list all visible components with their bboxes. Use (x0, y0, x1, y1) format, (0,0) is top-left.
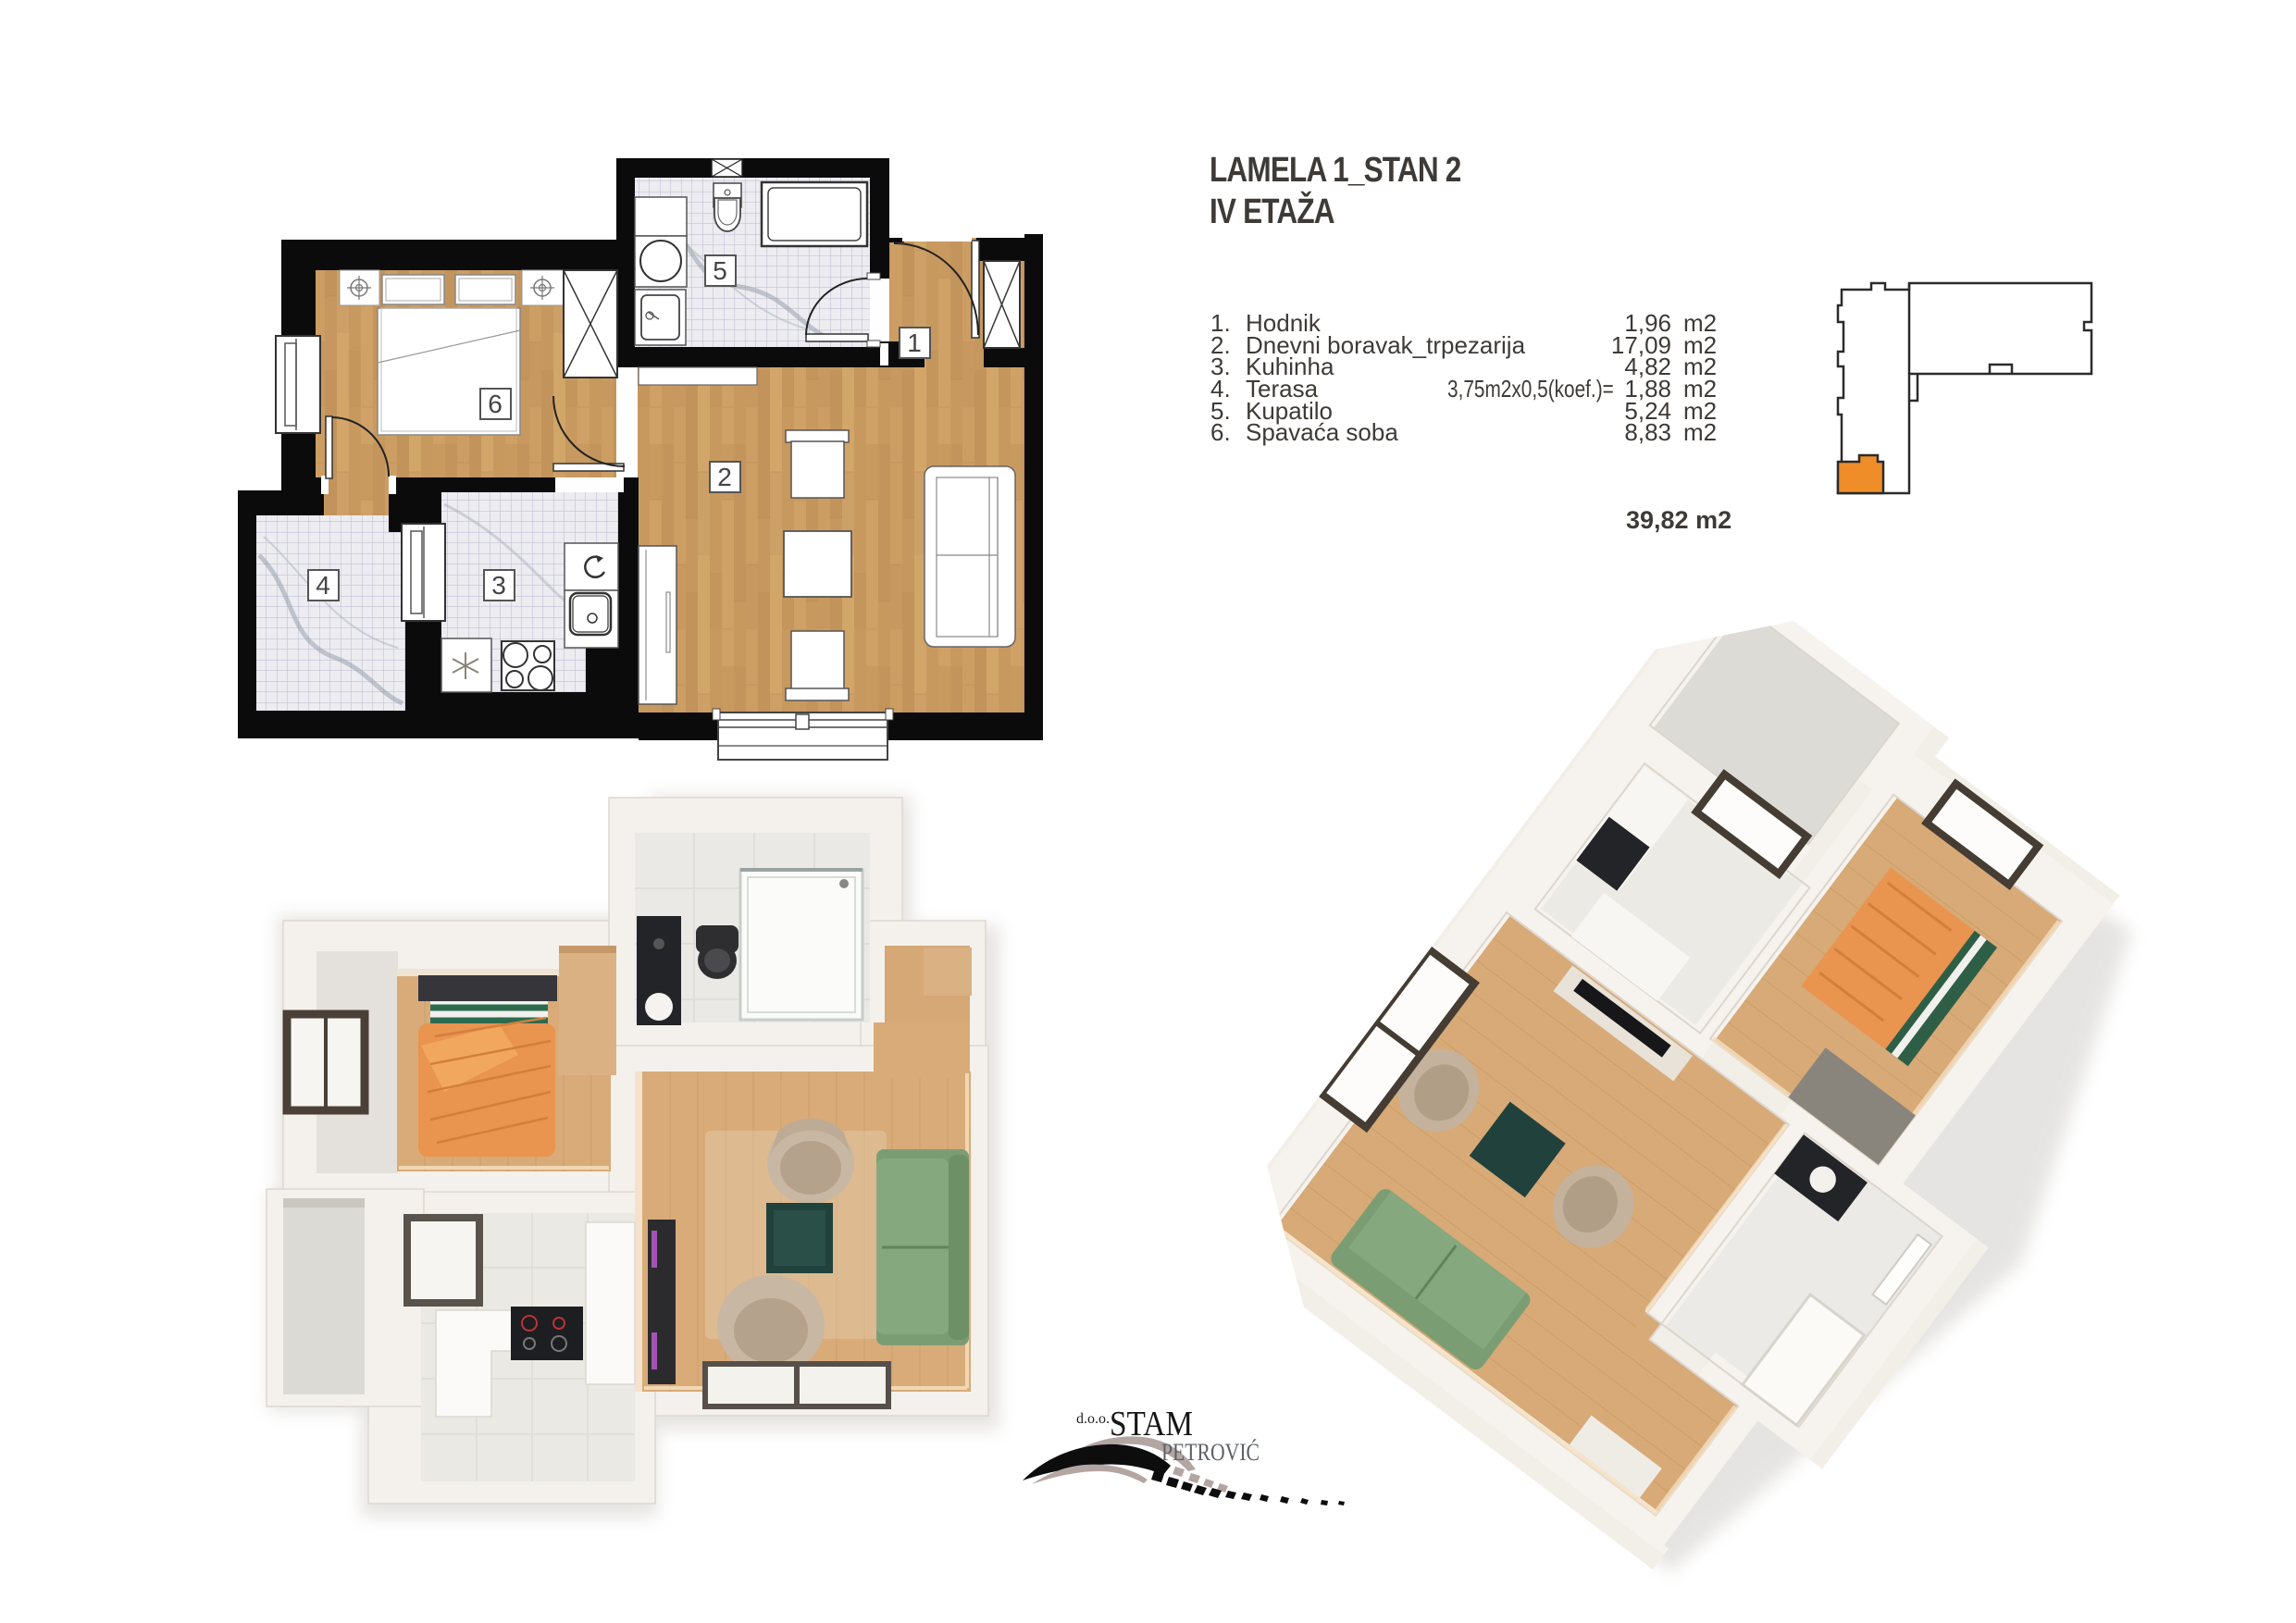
svg-text:PETROVIĆ: PETROVIĆ (1161, 1439, 1260, 1466)
svg-text:2: 2 (717, 463, 732, 491)
svg-text:d.o.o.: d.o.o. (1076, 1411, 1110, 1427)
svg-text:3: 3 (491, 571, 506, 600)
svg-text:6: 6 (488, 390, 503, 418)
svg-text:1: 1 (907, 328, 922, 357)
svg-text:4: 4 (316, 571, 330, 600)
svg-text:STAM: STAM (1110, 1405, 1193, 1443)
svg-text:5: 5 (713, 256, 727, 285)
